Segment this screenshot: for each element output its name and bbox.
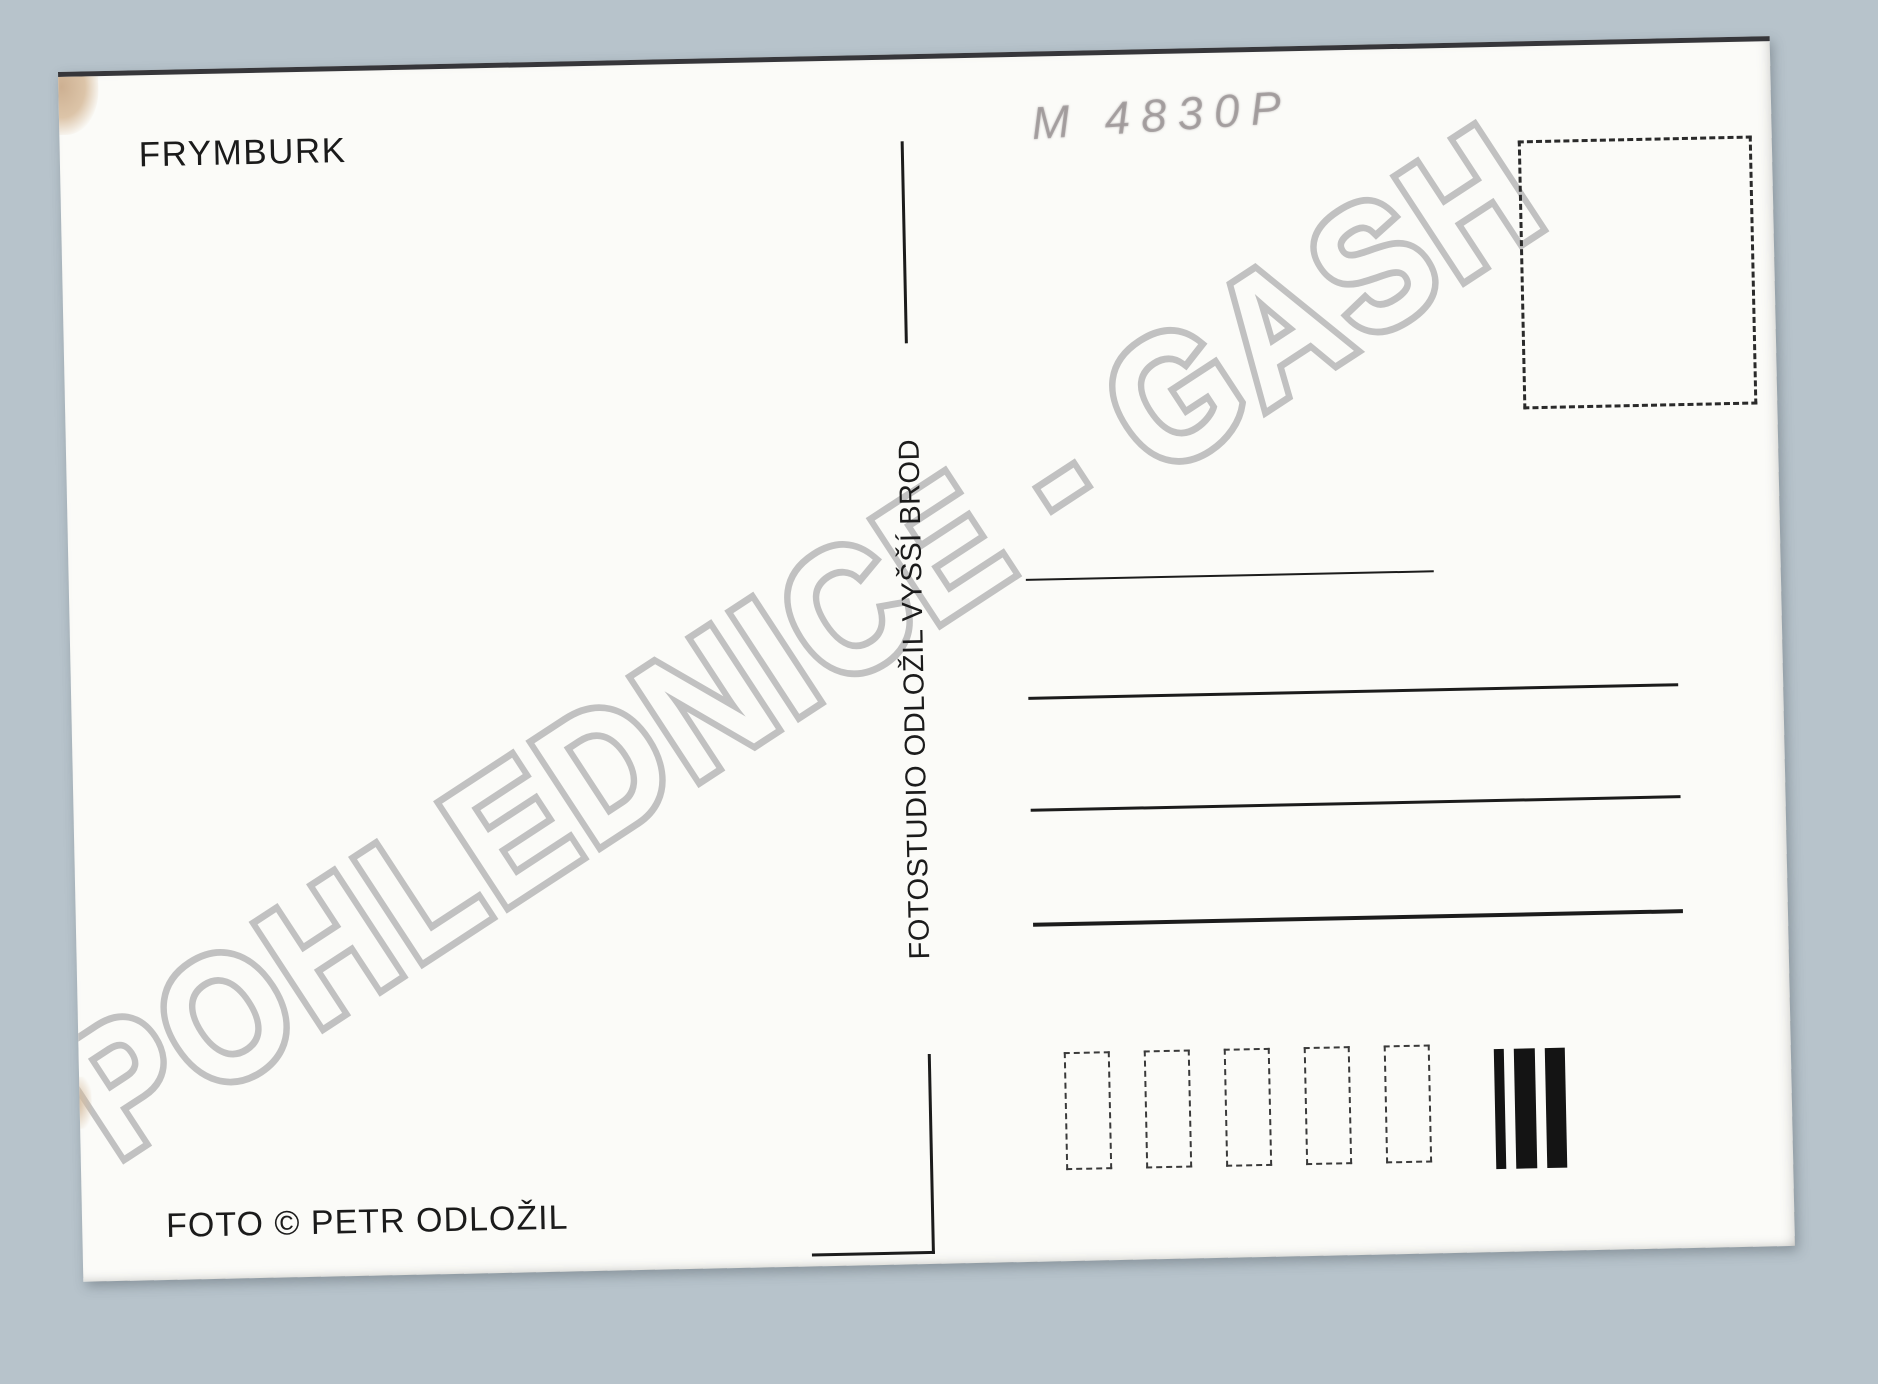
postal-code-box xyxy=(1304,1046,1352,1165)
photo-credit: FOTO © PETR ODLOŽIL xyxy=(166,1199,569,1246)
watermark-text: POHLEDNICE - GASH xyxy=(58,88,1576,1193)
sorting-bar xyxy=(1514,1048,1538,1168)
divider-bottom-line xyxy=(928,1054,935,1254)
corner-damage-spot xyxy=(58,70,99,135)
pencil-note: M 4830P xyxy=(1030,80,1294,151)
edge-damage-spot xyxy=(75,1077,92,1129)
postcard-back: POHLEDNICE - GASH FRYMBURK M 4830P FOTOS… xyxy=(58,36,1795,1282)
postal-code-box xyxy=(1144,1050,1192,1169)
sorting-bars xyxy=(1494,1048,1567,1169)
address-line-4 xyxy=(1033,909,1683,927)
address-line-1 xyxy=(1026,570,1434,581)
stamp-box xyxy=(1518,136,1758,410)
sorting-bar xyxy=(1545,1048,1568,1168)
divider-bottom-foot xyxy=(812,1251,935,1257)
scan-background: { "scan": { "background_color": "#b7c3cb… xyxy=(0,0,1878,1384)
postal-code-box xyxy=(1224,1048,1272,1167)
postal-code-boxes xyxy=(1064,1044,1432,1170)
card-title: FRYMBURK xyxy=(138,131,347,175)
address-line-3 xyxy=(1031,795,1681,812)
sorting-bar xyxy=(1494,1049,1507,1169)
divider-top-line xyxy=(901,141,908,343)
address-line-2 xyxy=(1028,683,1678,700)
studio-credit-vertical: FOTOSTUDIO ODLOŽIL VYŠŠÍ BROD xyxy=(893,439,937,960)
postal-code-box xyxy=(1064,1051,1112,1170)
postal-code-box xyxy=(1384,1044,1432,1163)
